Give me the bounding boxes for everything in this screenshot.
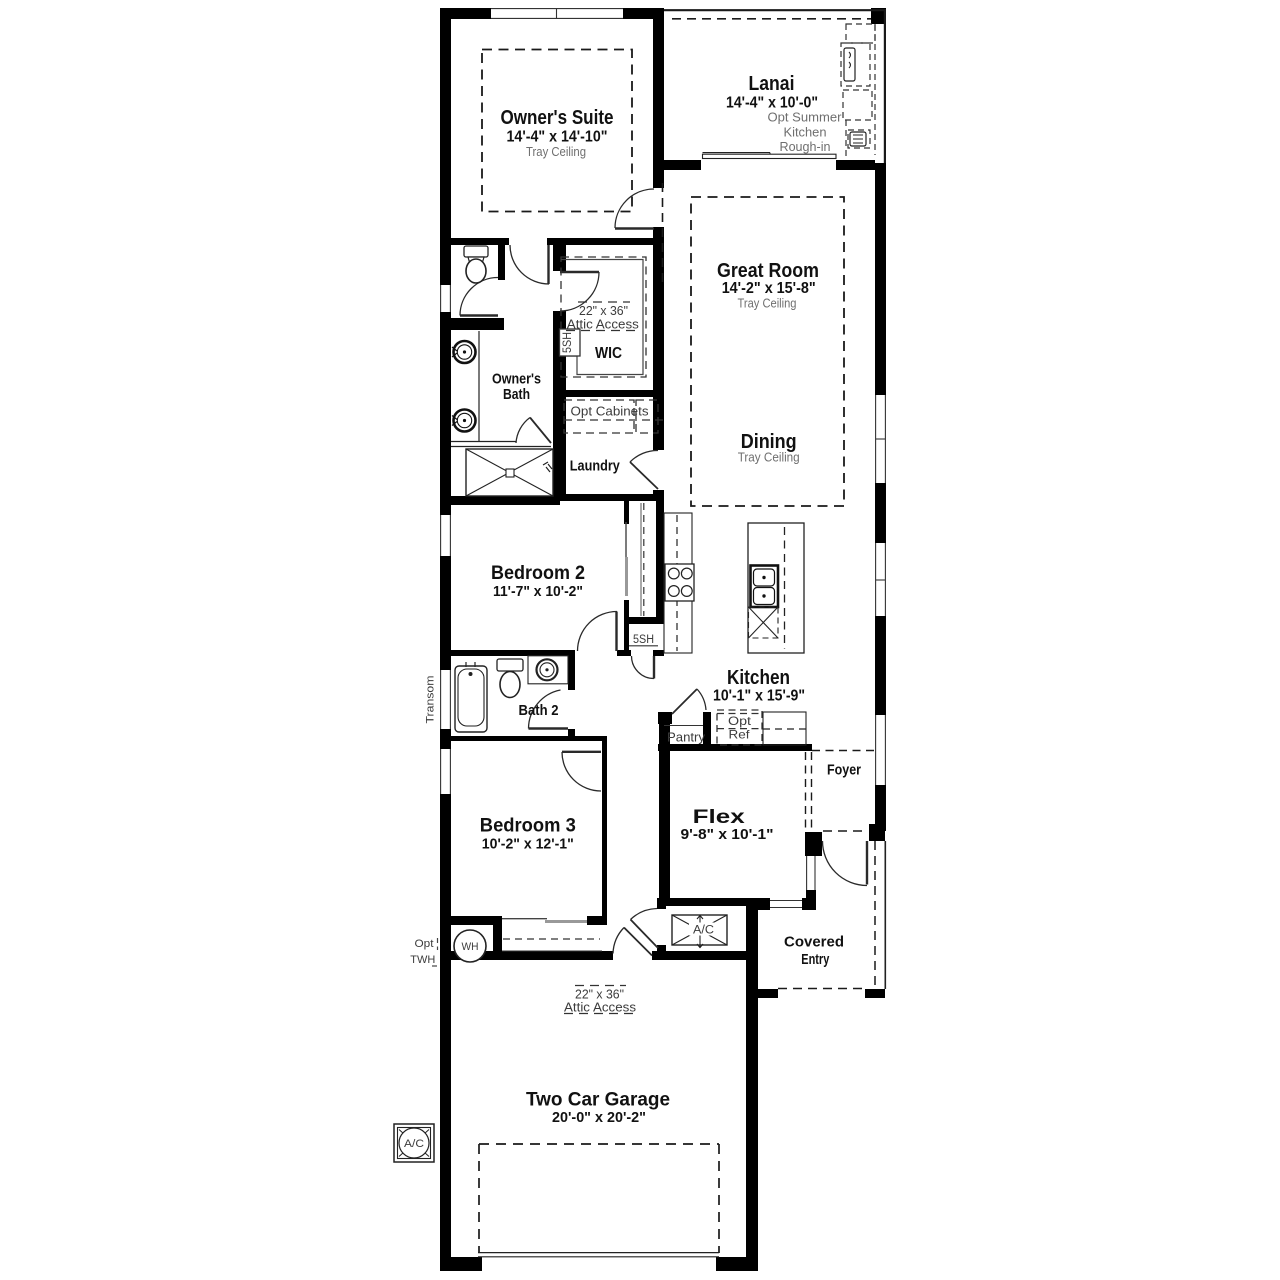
svg-text:14'-4" x 14'-10": 14'-4" x 14'-10" — [507, 129, 608, 146]
svg-text:10'-2" x 12'-1": 10'-2" x 12'-1" — [482, 836, 574, 853]
svg-text:10'-1" x 15'-9": 10'-1" x 15'-9" — [713, 688, 805, 705]
svg-text:Two Car Garage: Two Car Garage — [526, 1090, 670, 1111]
svg-text:Owner's: Owner's — [492, 371, 541, 388]
svg-text:TWH: TWH — [410, 954, 435, 966]
svg-text:20'-0" x 20'-2": 20'-0" x 20'-2" — [552, 1109, 646, 1126]
svg-text:Bedroom 3: Bedroom 3 — [480, 816, 576, 837]
svg-text:Laundry: Laundry — [570, 459, 620, 475]
svg-text:A/C: A/C — [404, 1138, 424, 1150]
svg-text:5SH: 5SH — [562, 332, 574, 353]
svg-text:Opt Cabinets: Opt Cabinets — [571, 404, 650, 419]
svg-text:Kitchen: Kitchen — [784, 125, 827, 140]
svg-text:5SH: 5SH — [633, 634, 654, 646]
svg-text:14'-2" x 15'-8": 14'-2" x 15'-8" — [722, 280, 816, 297]
svg-text:Rough-in: Rough-in — [780, 139, 831, 154]
svg-text:Kitchen: Kitchen — [727, 667, 790, 689]
svg-text:Covered: Covered — [784, 935, 844, 951]
svg-text:Bath 2: Bath 2 — [519, 702, 559, 719]
svg-text:Attic Access: Attic Access — [564, 1000, 637, 1015]
svg-text:A/C: A/C — [693, 925, 714, 937]
svg-text:Bath: Bath — [503, 386, 530, 403]
svg-text:Lanai: Lanai — [749, 73, 795, 95]
svg-text:Transom: Transom — [425, 676, 437, 724]
svg-text:Bedroom 2: Bedroom 2 — [491, 563, 585, 584]
svg-text:11'-7" x 10'-2": 11'-7" x 10'-2" — [493, 583, 583, 600]
svg-text:WIC: WIC — [595, 345, 622, 362]
svg-text:Tray Ceiling: Tray Ceiling — [738, 296, 797, 311]
svg-text:Tray Ceiling: Tray Ceiling — [526, 144, 586, 159]
svg-text:Opt Summer: Opt Summer — [768, 110, 843, 125]
svg-text:Attic Access: Attic Access — [567, 317, 640, 332]
svg-text:Flex: Flex — [693, 807, 746, 828]
svg-text:Great Room: Great Room — [717, 260, 819, 282]
svg-text:Foyer: Foyer — [827, 763, 861, 779]
svg-text:Owner's Suite: Owner's Suite — [501, 107, 614, 129]
svg-text:Pantry: Pantry — [667, 730, 705, 745]
svg-text:Entry: Entry — [801, 952, 829, 968]
svg-text:Opt: Opt — [415, 938, 434, 950]
svg-text:WH: WH — [462, 941, 479, 953]
svg-text:Tray Ceiling: Tray Ceiling — [738, 450, 800, 465]
svg-text:9'-8" x 10'-1": 9'-8" x 10'-1" — [681, 826, 774, 843]
svg-text:Opt: Opt — [728, 714, 752, 728]
svg-text:Ref: Ref — [729, 728, 751, 742]
